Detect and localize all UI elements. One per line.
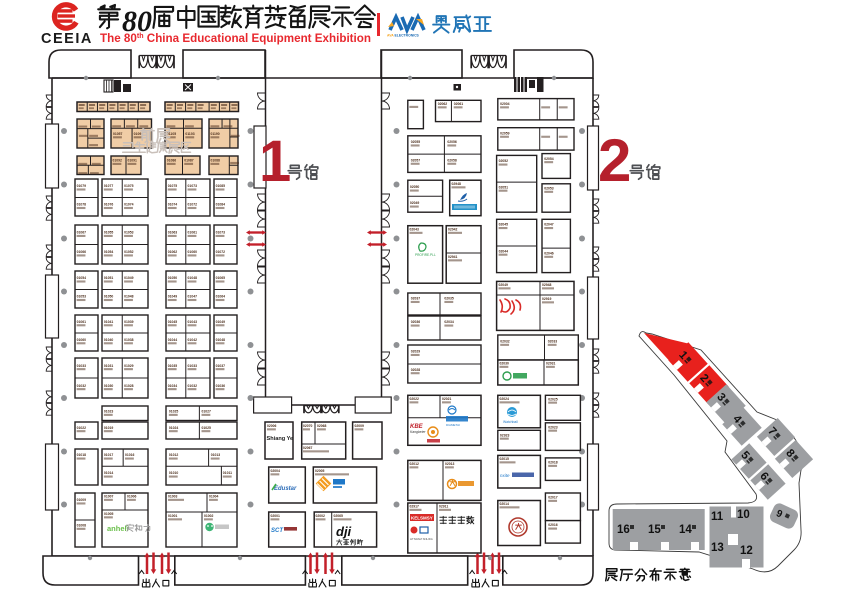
svg-text:02923: 02923 [500, 433, 510, 437]
svg-text:01092: 01092 [113, 159, 123, 163]
svg-text:Shiang Ye: Shiang Ye [267, 436, 294, 442]
svg-text:01073: 01073 [216, 231, 226, 235]
svg-text:01037: 01037 [216, 364, 226, 368]
svg-text:01035: 01035 [168, 364, 178, 368]
svg-text:02005: 02005 [315, 469, 325, 473]
svg-text:01049: 01049 [124, 276, 134, 280]
svg-text:01024: 01024 [169, 426, 179, 430]
svg-text:15: 15 [648, 524, 661, 536]
svg-text:KELSMSY: KELSMSY [411, 516, 433, 521]
svg-text:01023: 01023 [104, 410, 114, 414]
svg-text:02056: 02056 [447, 140, 457, 144]
svg-text:01048: 01048 [216, 338, 226, 342]
svg-text:10: 10 [737, 509, 750, 521]
svg-text:01016: 01016 [125, 453, 135, 457]
svg-text:02911: 02911 [439, 505, 448, 509]
svg-text:02036: 02036 [411, 320, 421, 324]
svg-text:HTSRAM SNLIDA: HTSRAM SNLIDA [410, 537, 433, 541]
svg-text:02016: 02016 [548, 523, 558, 527]
svg-text:01054: 01054 [104, 250, 114, 254]
svg-text:02031: 02031 [546, 362, 556, 366]
svg-text:01072: 01072 [188, 203, 198, 207]
svg-text:02021: 02021 [442, 397, 452, 401]
svg-text:02068: 02068 [317, 424, 327, 428]
svg-text:02025: 02025 [548, 397, 558, 401]
svg-text:01067: 01067 [77, 231, 87, 235]
svg-text:01074: 01074 [168, 203, 178, 207]
svg-text:01086: 01086 [167, 159, 177, 163]
svg-text:01002: 01002 [204, 514, 214, 518]
svg-text:02070: 02070 [303, 424, 313, 428]
svg-text:01012: 01012 [169, 453, 179, 457]
svg-text:01053: 01053 [124, 231, 134, 235]
svg-text:01190: 01190 [210, 132, 219, 136]
svg-text:01063: 01063 [168, 231, 178, 235]
svg-text:1: 1 [259, 129, 291, 194]
svg-text:01031: 01031 [104, 364, 114, 368]
svg-text:01060: 01060 [77, 338, 87, 342]
svg-text:01017: 01017 [104, 453, 114, 457]
svg-text:01047: 01047 [188, 295, 198, 299]
svg-text:01052: 01052 [124, 250, 134, 254]
svg-text:01040: 01040 [104, 338, 114, 342]
svg-text:01084: 01084 [216, 203, 226, 207]
svg-text:01011: 01011 [223, 471, 232, 475]
svg-text:01091: 01091 [128, 159, 138, 163]
svg-text:01073: 01073 [188, 184, 198, 188]
svg-text:02004: 02004 [271, 469, 281, 473]
svg-text:01018: 01018 [77, 453, 87, 457]
svg-text:01025: 01025 [169, 410, 179, 414]
svg-text:02051: 02051 [499, 185, 509, 189]
svg-text:01066: 01066 [77, 250, 87, 254]
svg-text:11: 11 [711, 511, 724, 523]
svg-text:01060: 01060 [188, 250, 198, 254]
svg-text:01013: 01013 [211, 453, 221, 457]
svg-text:anheli: anheli [107, 524, 129, 533]
svg-text:SCT: SCT [271, 528, 284, 534]
svg-text:01050: 01050 [104, 295, 114, 299]
svg-text:01057: 01057 [113, 132, 123, 136]
svg-text:02028: 02028 [411, 368, 421, 372]
svg-text:AVA: AVA [387, 34, 394, 38]
svg-text:01033: 01033 [77, 364, 87, 368]
svg-text:01009: 01009 [77, 498, 87, 502]
svg-text:02059: 02059 [500, 131, 510, 135]
svg-text:02043: 02043 [410, 228, 420, 232]
svg-text:01055: 01055 [104, 231, 114, 235]
svg-text:02014: 02014 [500, 502, 510, 506]
svg-text:DIAMETAI: DIAMETAI [446, 423, 460, 427]
svg-text:01030: 01030 [104, 384, 114, 388]
svg-text:16: 16 [617, 524, 630, 536]
svg-text:02948: 02948 [542, 283, 552, 287]
svg-text:01079: 01079 [77, 184, 87, 188]
svg-text:2: 2 [598, 127, 631, 194]
svg-text:01065: 01065 [216, 276, 226, 280]
svg-text:01029: 01029 [124, 364, 134, 368]
svg-text:01087: 01087 [184, 159, 194, 163]
svg-text:01048: 01048 [188, 276, 198, 280]
svg-text:02941: 02941 [448, 255, 458, 259]
svg-text:02015: 02015 [500, 457, 510, 461]
svg-text:01088: 01088 [210, 159, 220, 163]
svg-text:02029: 02029 [411, 350, 421, 354]
svg-text:02030: 02030 [500, 362, 510, 366]
svg-text:01076: 01076 [104, 203, 114, 207]
svg-text:02033: 02033 [548, 340, 558, 344]
svg-text:02004: 02004 [500, 102, 510, 106]
svg-text:01006: 01006 [127, 495, 137, 499]
svg-text:01014: 01014 [104, 471, 114, 475]
svg-text:01022: 01022 [77, 426, 87, 430]
svg-text:dji: dji [336, 524, 352, 539]
svg-text:01028: 01028 [124, 384, 134, 388]
svg-text:01008: 01008 [77, 523, 87, 527]
svg-text:01048: 01048 [124, 295, 134, 299]
svg-text:01103: 01103 [185, 132, 194, 136]
svg-text:01062: 01062 [168, 250, 178, 254]
svg-text:02024: 02024 [500, 397, 510, 401]
svg-text:Kangbeier: Kangbeier [410, 430, 426, 434]
svg-text:01034: 01034 [168, 384, 178, 388]
svg-text:02046: 02046 [544, 251, 554, 255]
svg-text:02054: 02054 [544, 157, 554, 161]
svg-text:02006: 02006 [267, 424, 277, 428]
svg-text:02917: 02917 [410, 505, 420, 509]
svg-text:02032: 02032 [500, 340, 510, 344]
svg-text:01075: 01075 [168, 184, 178, 188]
svg-text:01025: 01025 [202, 426, 212, 430]
svg-text:02044: 02044 [499, 249, 509, 253]
svg-text:01050: 01050 [168, 276, 178, 280]
svg-text:02023: 02023 [548, 425, 558, 429]
svg-text:01051: 01051 [104, 276, 114, 280]
svg-text:01038: 01038 [124, 338, 134, 342]
svg-text:01054: 01054 [77, 276, 87, 280]
svg-text:01019: 01019 [104, 426, 114, 430]
svg-text:02067: 02067 [303, 446, 313, 450]
svg-text:02053: 02053 [544, 186, 554, 190]
svg-text:01044: 01044 [168, 338, 178, 342]
svg-text:01027: 01027 [202, 410, 212, 414]
svg-text:Edustar: Edustar [274, 486, 297, 492]
svg-text:01007: 01007 [104, 495, 114, 499]
svg-text:01085: 01085 [216, 184, 226, 188]
svg-text:02037: 02037 [411, 297, 421, 301]
svg-text:02058: 02058 [447, 158, 457, 162]
svg-text:01036: 01036 [216, 384, 226, 388]
svg-text:01078: 01078 [77, 203, 87, 207]
svg-text:01004: 01004 [209, 495, 219, 499]
svg-text:01049: 01049 [168, 295, 178, 299]
svg-text:02055: 02055 [411, 140, 421, 144]
svg-text:02045: 02045 [499, 223, 509, 227]
svg-text:01032: 01032 [77, 384, 87, 388]
svg-text:02050: 02050 [410, 185, 420, 189]
svg-text:01053: 01053 [77, 295, 87, 299]
svg-text:02017: 02017 [548, 496, 558, 500]
svg-text:02018: 02018 [548, 461, 558, 465]
svg-text:02013: 02013 [445, 462, 455, 466]
svg-text:02001: 02001 [271, 514, 281, 518]
svg-text:PROFIRE.PLL: PROFIRE.PLL [415, 253, 436, 257]
svg-text:Watchball: Watchball [503, 420, 518, 424]
svg-text:01045: 01045 [168, 320, 178, 324]
svg-text:02057: 02057 [411, 158, 421, 162]
svg-text:01075: 01075 [124, 184, 134, 188]
svg-text:02919: 02919 [542, 297, 552, 301]
svg-text:01043: 01043 [188, 320, 198, 324]
svg-text:01041: 01041 [104, 320, 114, 324]
svg-text:02042: 02042 [448, 228, 458, 232]
svg-text:02002: 02002 [316, 514, 326, 518]
svg-text:CEEIA: CEEIA [41, 31, 93, 47]
svg-text:02061: 02061 [454, 102, 464, 106]
svg-text:13: 13 [711, 542, 724, 554]
svg-text:12: 12 [740, 545, 753, 557]
svg-text:01074: 01074 [124, 203, 134, 207]
svg-text:14: 14 [679, 524, 692, 536]
svg-text:01061: 01061 [188, 231, 198, 235]
svg-text:02047: 02047 [544, 223, 554, 227]
svg-text:02062: 02062 [438, 102, 448, 106]
svg-text:01077: 01077 [104, 184, 114, 188]
svg-text:01042: 01042 [188, 338, 198, 342]
svg-text:01010: 01010 [169, 471, 179, 475]
svg-text:01039: 01039 [124, 320, 134, 324]
svg-text:02049: 02049 [499, 283, 509, 287]
svg-text:nxite: nxite [500, 473, 510, 478]
svg-text:01005: 01005 [104, 512, 114, 516]
svg-text:02948: 02948 [452, 182, 462, 186]
svg-text:02052: 02052 [499, 159, 509, 163]
svg-text:02049: 02049 [410, 201, 420, 205]
svg-text:01049: 01049 [216, 320, 226, 324]
svg-text:01032: 01032 [188, 384, 198, 388]
svg-text:ELECTRONICS: ELECTRONICS [395, 34, 420, 38]
svg-text:02035: 02035 [444, 297, 454, 301]
svg-text:01001: 01001 [168, 514, 178, 518]
svg-text:01033: 01033 [188, 364, 198, 368]
svg-text:02022: 02022 [410, 397, 420, 401]
svg-text:01064: 01064 [216, 295, 226, 299]
svg-text:02009: 02009 [355, 424, 365, 428]
svg-text:01061: 01061 [77, 320, 87, 324]
svg-text:02065: 02065 [334, 514, 344, 518]
svg-text:02034: 02034 [444, 320, 454, 324]
svg-text:02012: 02012 [410, 462, 420, 466]
svg-text:01072: 01072 [216, 250, 226, 254]
svg-text:The 80th China Educational Equ: The 80th China Educational Equipment Exh… [100, 31, 371, 45]
svg-text:01003: 01003 [168, 495, 178, 499]
